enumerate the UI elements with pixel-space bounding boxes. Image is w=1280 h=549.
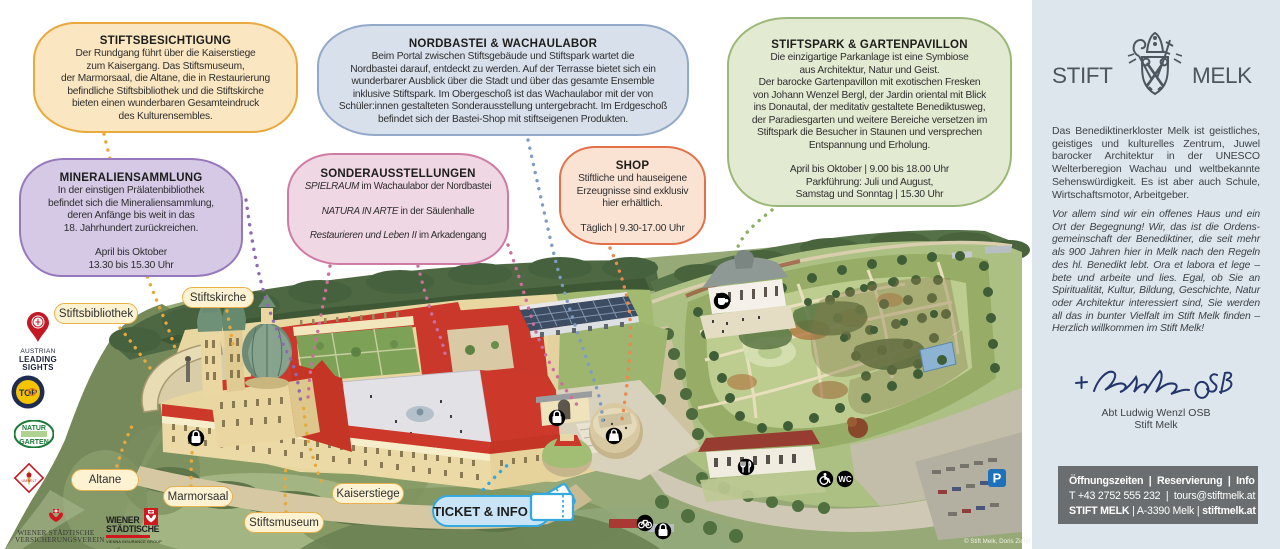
svg-text:P: P: [993, 471, 1002, 486]
svg-text:GARTEN: GARTEN: [19, 439, 49, 446]
svg-text:UMWELT: UMWELT: [22, 479, 38, 483]
svg-text:NATUR: NATUR: [22, 425, 46, 432]
svg-text:WC: WC: [838, 475, 852, 484]
